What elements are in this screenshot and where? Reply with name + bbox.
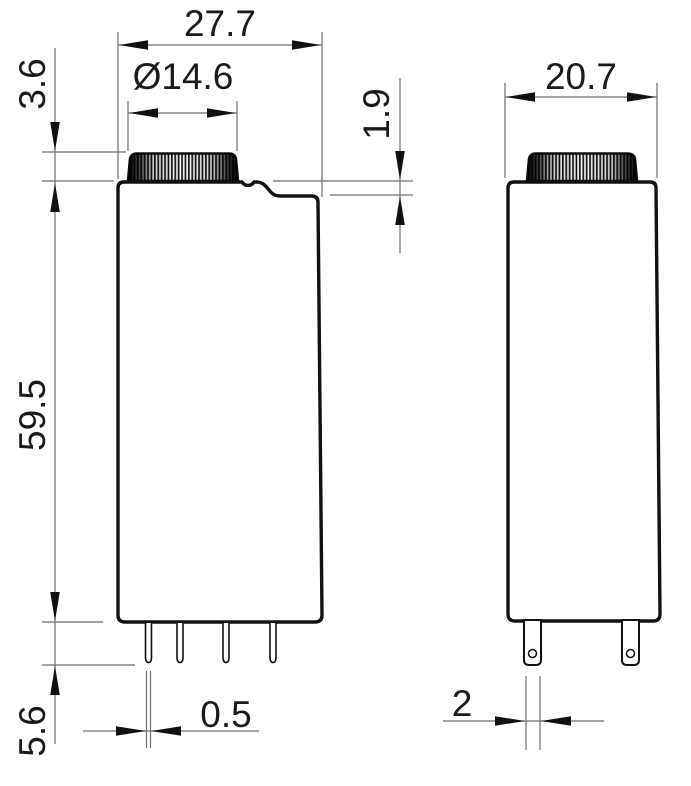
dim-label-pin-length: 5.6 xyxy=(12,705,53,756)
dim-label-side-overall-width: 20.7 xyxy=(545,56,617,97)
arrow-down-body-bottom xyxy=(50,592,60,621)
front-pin-1 xyxy=(146,623,152,663)
front-body-outline xyxy=(118,182,322,622)
arrow-right xyxy=(627,92,656,102)
arrow-pointing-right xyxy=(116,726,146,736)
arrow-down xyxy=(395,151,405,180)
arrow-right xyxy=(207,108,236,118)
arrow-pointing-left xyxy=(541,716,571,726)
side-body-outline xyxy=(508,182,660,621)
side-pins xyxy=(524,620,639,665)
arrow-down-knob-top xyxy=(50,122,60,151)
dim-label-side-pin-width: 2 xyxy=(452,683,473,724)
dim-label-body-height: 59.5 xyxy=(12,379,53,451)
arrow-left xyxy=(119,40,148,50)
arrow-pointing-left xyxy=(151,726,181,736)
dim-knob-diameter: Ø14.6 xyxy=(128,56,237,151)
side-view xyxy=(508,154,660,666)
dim-side-pin-width: 2 xyxy=(443,676,604,750)
front-pins xyxy=(146,623,277,663)
side-knob-shading xyxy=(527,154,637,182)
arrow-left xyxy=(129,108,158,118)
dim-label-front-overall-width: 27.7 xyxy=(184,3,256,44)
front-pin-4 xyxy=(270,623,276,663)
drawing-canvas: 27.7 Ø14.6 3.6 59.5 5.6 xyxy=(0,0,691,786)
dim-label-knob-diameter: Ø14.6 xyxy=(133,56,234,97)
dim-label-front-pin-width: 0.5 xyxy=(200,694,251,735)
arrow-left xyxy=(506,92,535,102)
side-blade-pin-1-hole xyxy=(529,650,537,658)
arrow-up-body-top xyxy=(50,183,60,212)
dimension-drawing: 27.7 Ø14.6 3.6 59.5 5.6 xyxy=(0,0,691,786)
dim-front-pin-width: 0.5 xyxy=(83,671,259,748)
side-blade-pin-2-hole xyxy=(627,650,635,658)
arrow-up-pin-tip xyxy=(50,666,60,695)
front-pin-2 xyxy=(177,623,183,663)
arrow-up xyxy=(395,196,405,225)
front-view xyxy=(118,154,322,663)
dim-label-shoulder-step: 1.9 xyxy=(356,88,397,139)
dim-label-knob-height: 3.6 xyxy=(12,58,53,109)
arrow-pointing-right xyxy=(495,716,525,726)
front-knob-shading xyxy=(128,154,238,182)
arrow-right xyxy=(292,40,321,50)
front-pin-3 xyxy=(223,623,229,663)
